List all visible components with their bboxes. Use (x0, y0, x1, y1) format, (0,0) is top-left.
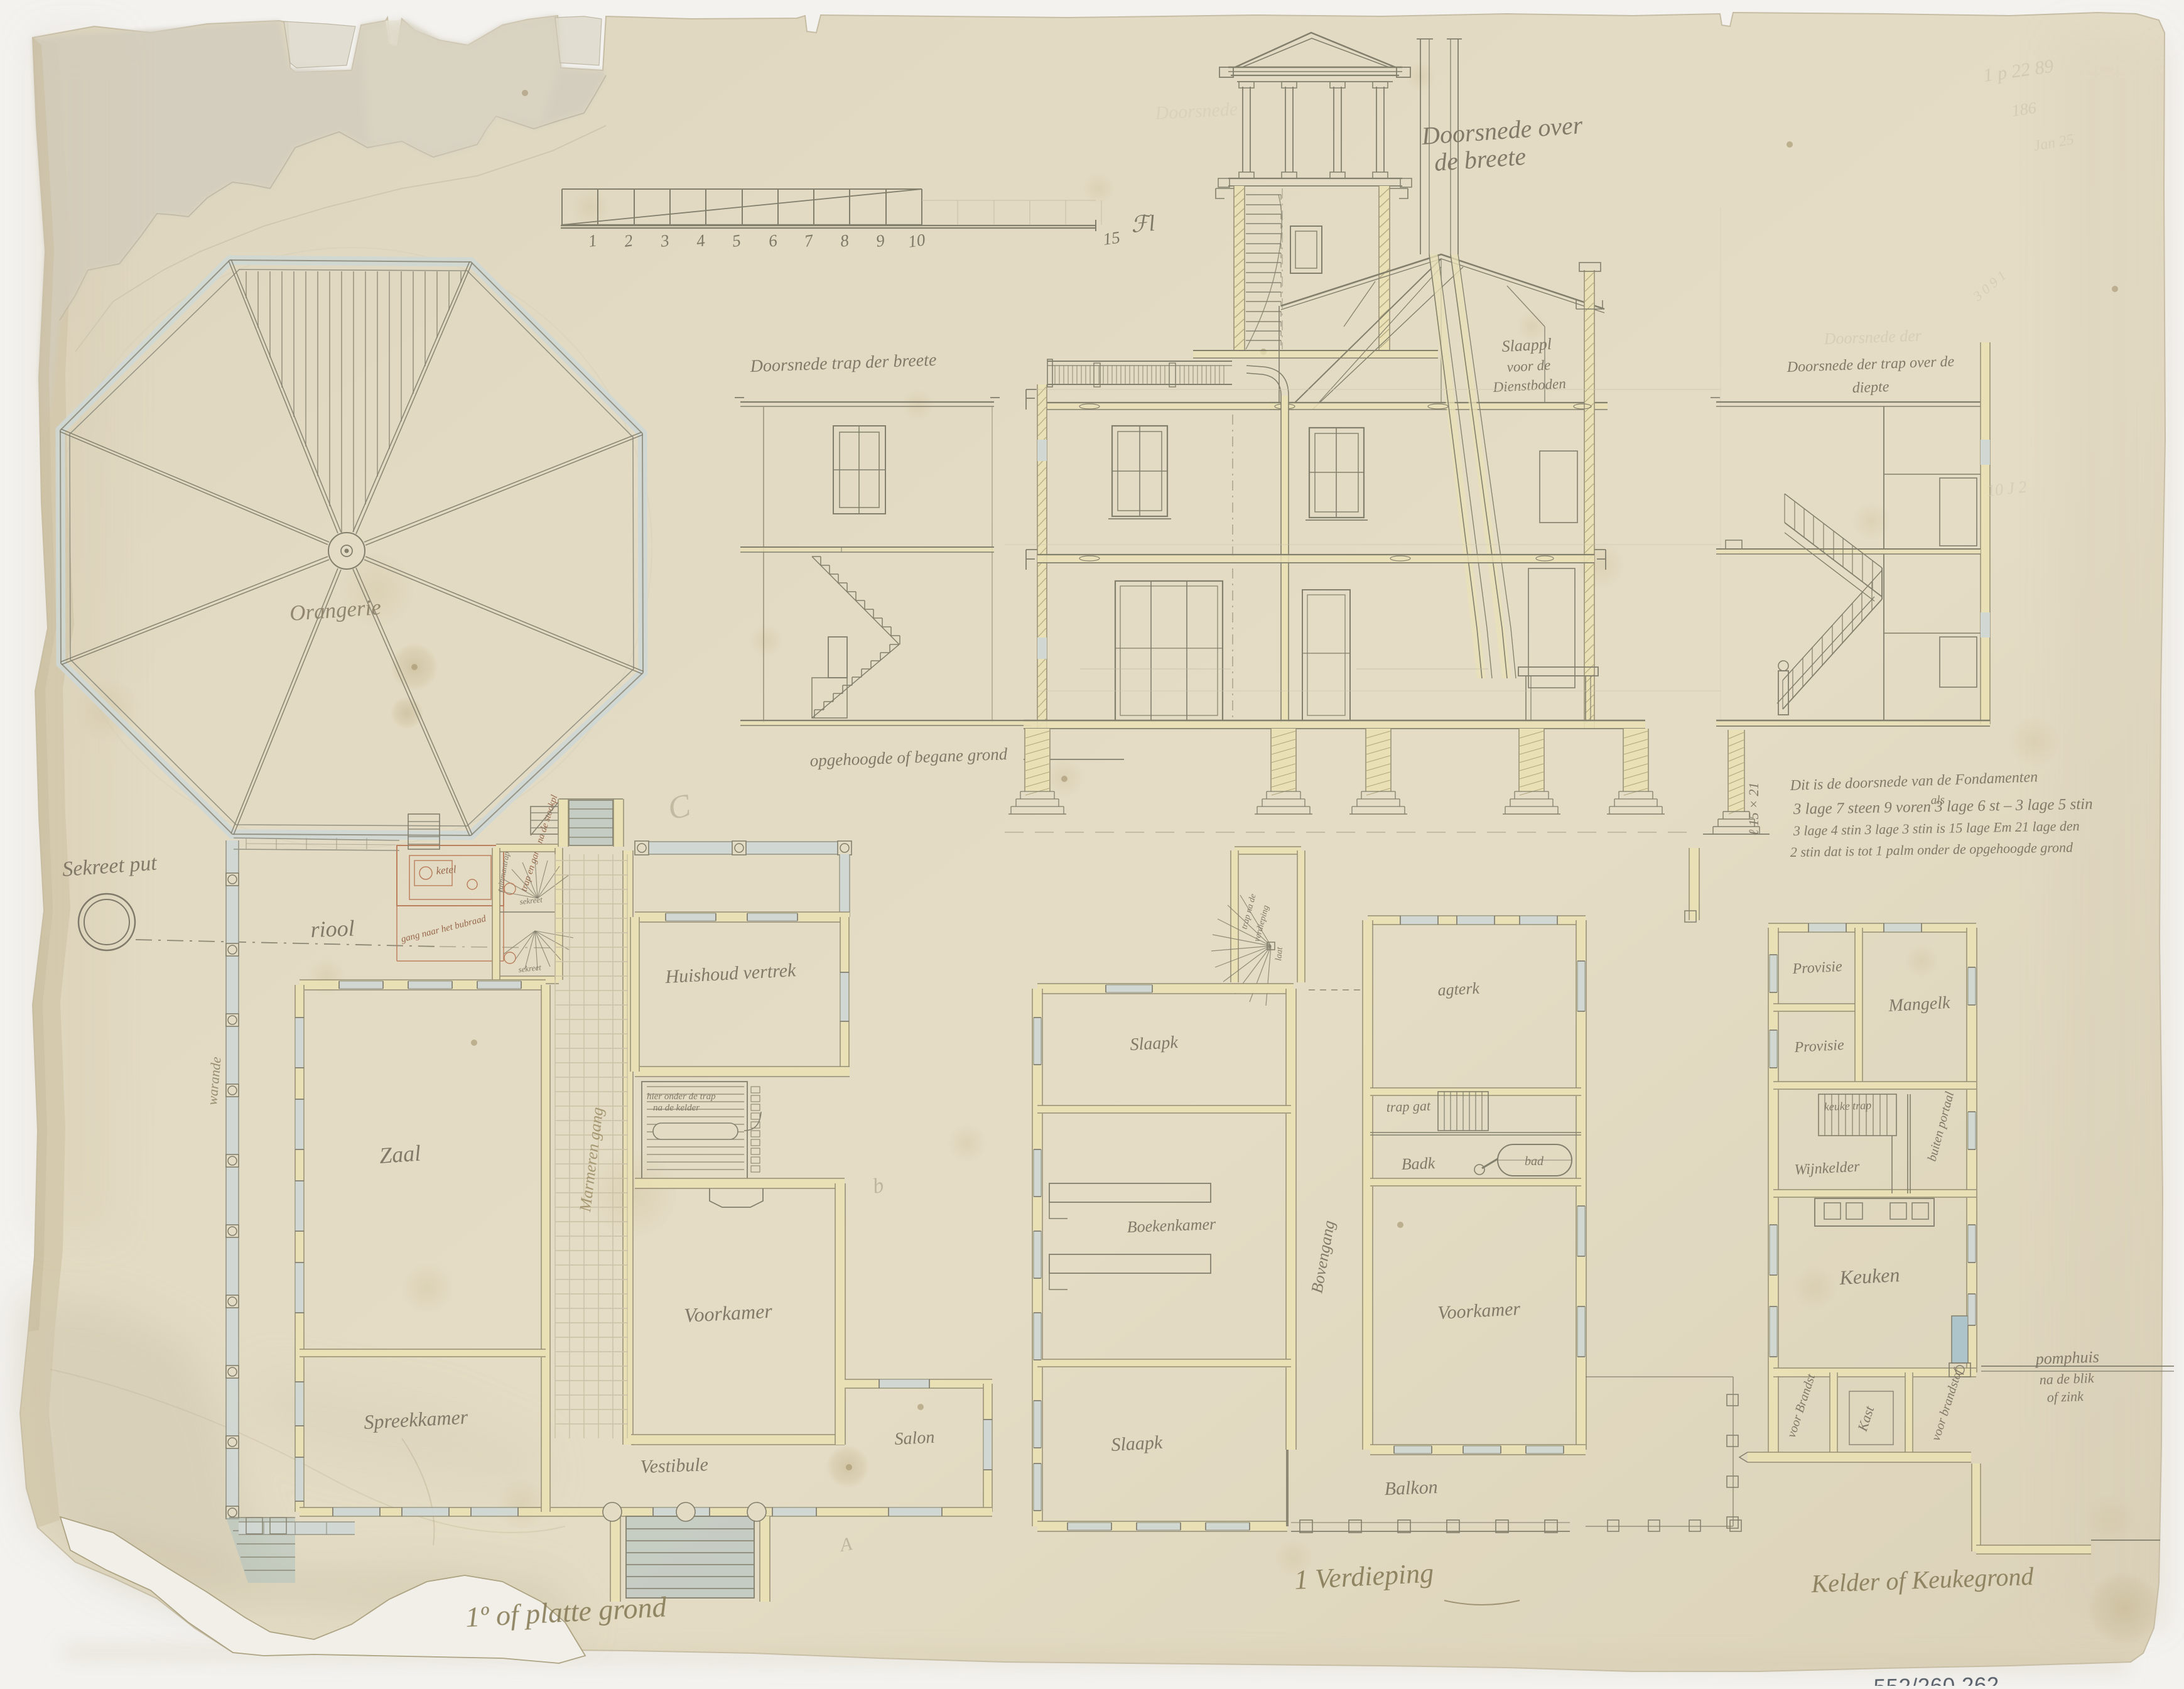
svg-text:Keuken: Keuken (1838, 1263, 1900, 1289)
svg-text:ℱl: ℱl (1130, 210, 1156, 237)
svg-text:agterk: agterk (1437, 979, 1480, 999)
svg-text:ketel: ketel (436, 863, 457, 877)
svg-text:Provisie: Provisie (1792, 959, 1843, 977)
svg-text:552/260.262: 552/260.262 (1873, 1673, 1999, 1686)
svg-text:Doorsnede der: Doorsnede der (1823, 327, 1922, 348)
svg-text:ℓ 15 × 21: ℓ 15 × 21 (1746, 782, 1761, 835)
svg-text:Voorkamer: Voorkamer (683, 1300, 773, 1327)
svg-text:Salon: Salon (894, 1428, 935, 1449)
svg-text:Slaapk: Slaapk (1111, 1432, 1164, 1455)
svg-text:Vestibule: Vestibule (640, 1454, 708, 1477)
svg-text:Doorsnede: Doorsnede (1154, 99, 1238, 124)
svg-text:Boekenkamer: Boekenkamer (1127, 1215, 1216, 1236)
svg-text:10: 10 (907, 230, 926, 251)
svg-text:laat: laat (1274, 946, 1285, 961)
svg-text:trap gat: trap gat (1386, 1098, 1431, 1115)
svg-text:riool: riool (310, 916, 355, 942)
svg-text:voor de: voor de (1506, 357, 1551, 375)
svg-text:Wijnkelder: Wijnkelder (1794, 1159, 1861, 1178)
svg-text:Slaapk: Slaapk (1130, 1033, 1179, 1055)
svg-text:hier onder de trap: hier onder de trap (647, 1092, 716, 1102)
svg-text:Provisie: Provisie (1793, 1037, 1845, 1056)
svg-text:186: 186 (2011, 99, 2038, 120)
svg-text:na de kelder: na de kelder (653, 1103, 700, 1113)
svg-text:of zink: of zink (2046, 1388, 2084, 1405)
svg-text:pomphuis: pomphuis (2034, 1347, 2099, 1368)
svg-text:diepte: diepte (1852, 379, 1889, 396)
svg-text:Slaappl: Slaappl (1501, 335, 1552, 356)
svg-text:Voorkamer: Voorkamer (1437, 1298, 1522, 1323)
svg-text:Balkon: Balkon (1384, 1477, 1438, 1499)
svg-text:keuke trap: keuke trap (1824, 1099, 1871, 1113)
svg-text:bad: bad (1525, 1154, 1544, 1168)
svg-text:15: 15 (1102, 227, 1122, 248)
svg-text:Badk: Badk (1401, 1154, 1435, 1173)
svg-text:na de blik: na de blik (2039, 1370, 2095, 1388)
svg-text:Mangelk: Mangelk (1888, 993, 1951, 1016)
svg-text:Zaal: Zaal (379, 1140, 422, 1168)
